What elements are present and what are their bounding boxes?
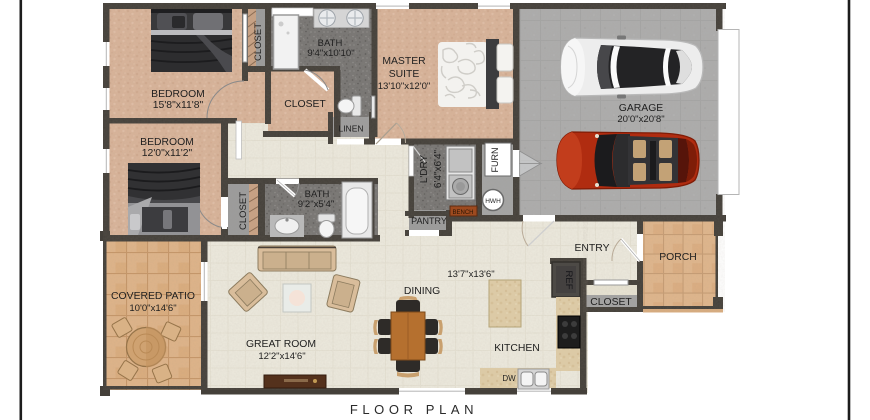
svg-text:9'2"x5'4": 9'2"x5'4" (298, 199, 335, 210)
svg-text:BEDROOM: BEDROOM (151, 89, 205, 100)
svg-text:HWH: HWH (485, 198, 501, 205)
svg-text:12'2"x14'6": 12'2"x14'6" (258, 351, 305, 362)
svg-text:10'0"x14'6": 10'0"x14'6" (129, 303, 176, 314)
svg-text:SUITE: SUITE (389, 69, 420, 80)
svg-text:L'DRY: L'DRY (419, 154, 430, 183)
svg-text:PORCH: PORCH (659, 252, 697, 263)
svg-text:DINING: DINING (404, 286, 440, 297)
svg-text:6'4"x6'4": 6'4"x6'4" (433, 149, 444, 188)
svg-text:CLOSET: CLOSET (253, 23, 264, 61)
svg-text:15'8"x11'8": 15'8"x11'8" (153, 100, 204, 111)
svg-text:CLOSET: CLOSET (590, 297, 632, 308)
svg-text:9'4"x10'10": 9'4"x10'10" (307, 48, 354, 59)
svg-text:GREAT ROOM: GREAT ROOM (246, 339, 316, 350)
svg-text:GARAGE: GARAGE (619, 103, 664, 114)
svg-text:LINEN: LINEN (338, 124, 363, 134)
svg-text:13'7"x13'6": 13'7"x13'6" (447, 269, 494, 280)
svg-text:MASTER: MASTER (382, 56, 426, 67)
svg-text:FURN: FURN (490, 148, 500, 173)
svg-text:CLOSET: CLOSET (238, 192, 249, 230)
svg-text:BEDROOM: BEDROOM (140, 137, 194, 148)
svg-text:20'0"x20'8": 20'0"x20'8" (617, 114, 664, 125)
svg-text:REF: REF (563, 271, 574, 290)
svg-text:12'0"x11'2": 12'0"x11'2" (142, 148, 193, 159)
svg-text:CLOSET: CLOSET (284, 99, 326, 110)
svg-text:KITCHEN: KITCHEN (494, 343, 540, 354)
svg-text:FLOOR PLAN: FLOOR PLAN (350, 402, 478, 417)
svg-text:BENCH: BENCH (452, 210, 473, 216)
svg-text:DW: DW (502, 374, 516, 383)
svg-text:13'10"x12'0": 13'10"x12'0" (378, 81, 431, 92)
svg-text:COVERED PATIO: COVERED PATIO (111, 291, 195, 302)
svg-text:ENTRY: ENTRY (574, 243, 609, 254)
svg-text:PANTRY: PANTRY (411, 216, 447, 226)
